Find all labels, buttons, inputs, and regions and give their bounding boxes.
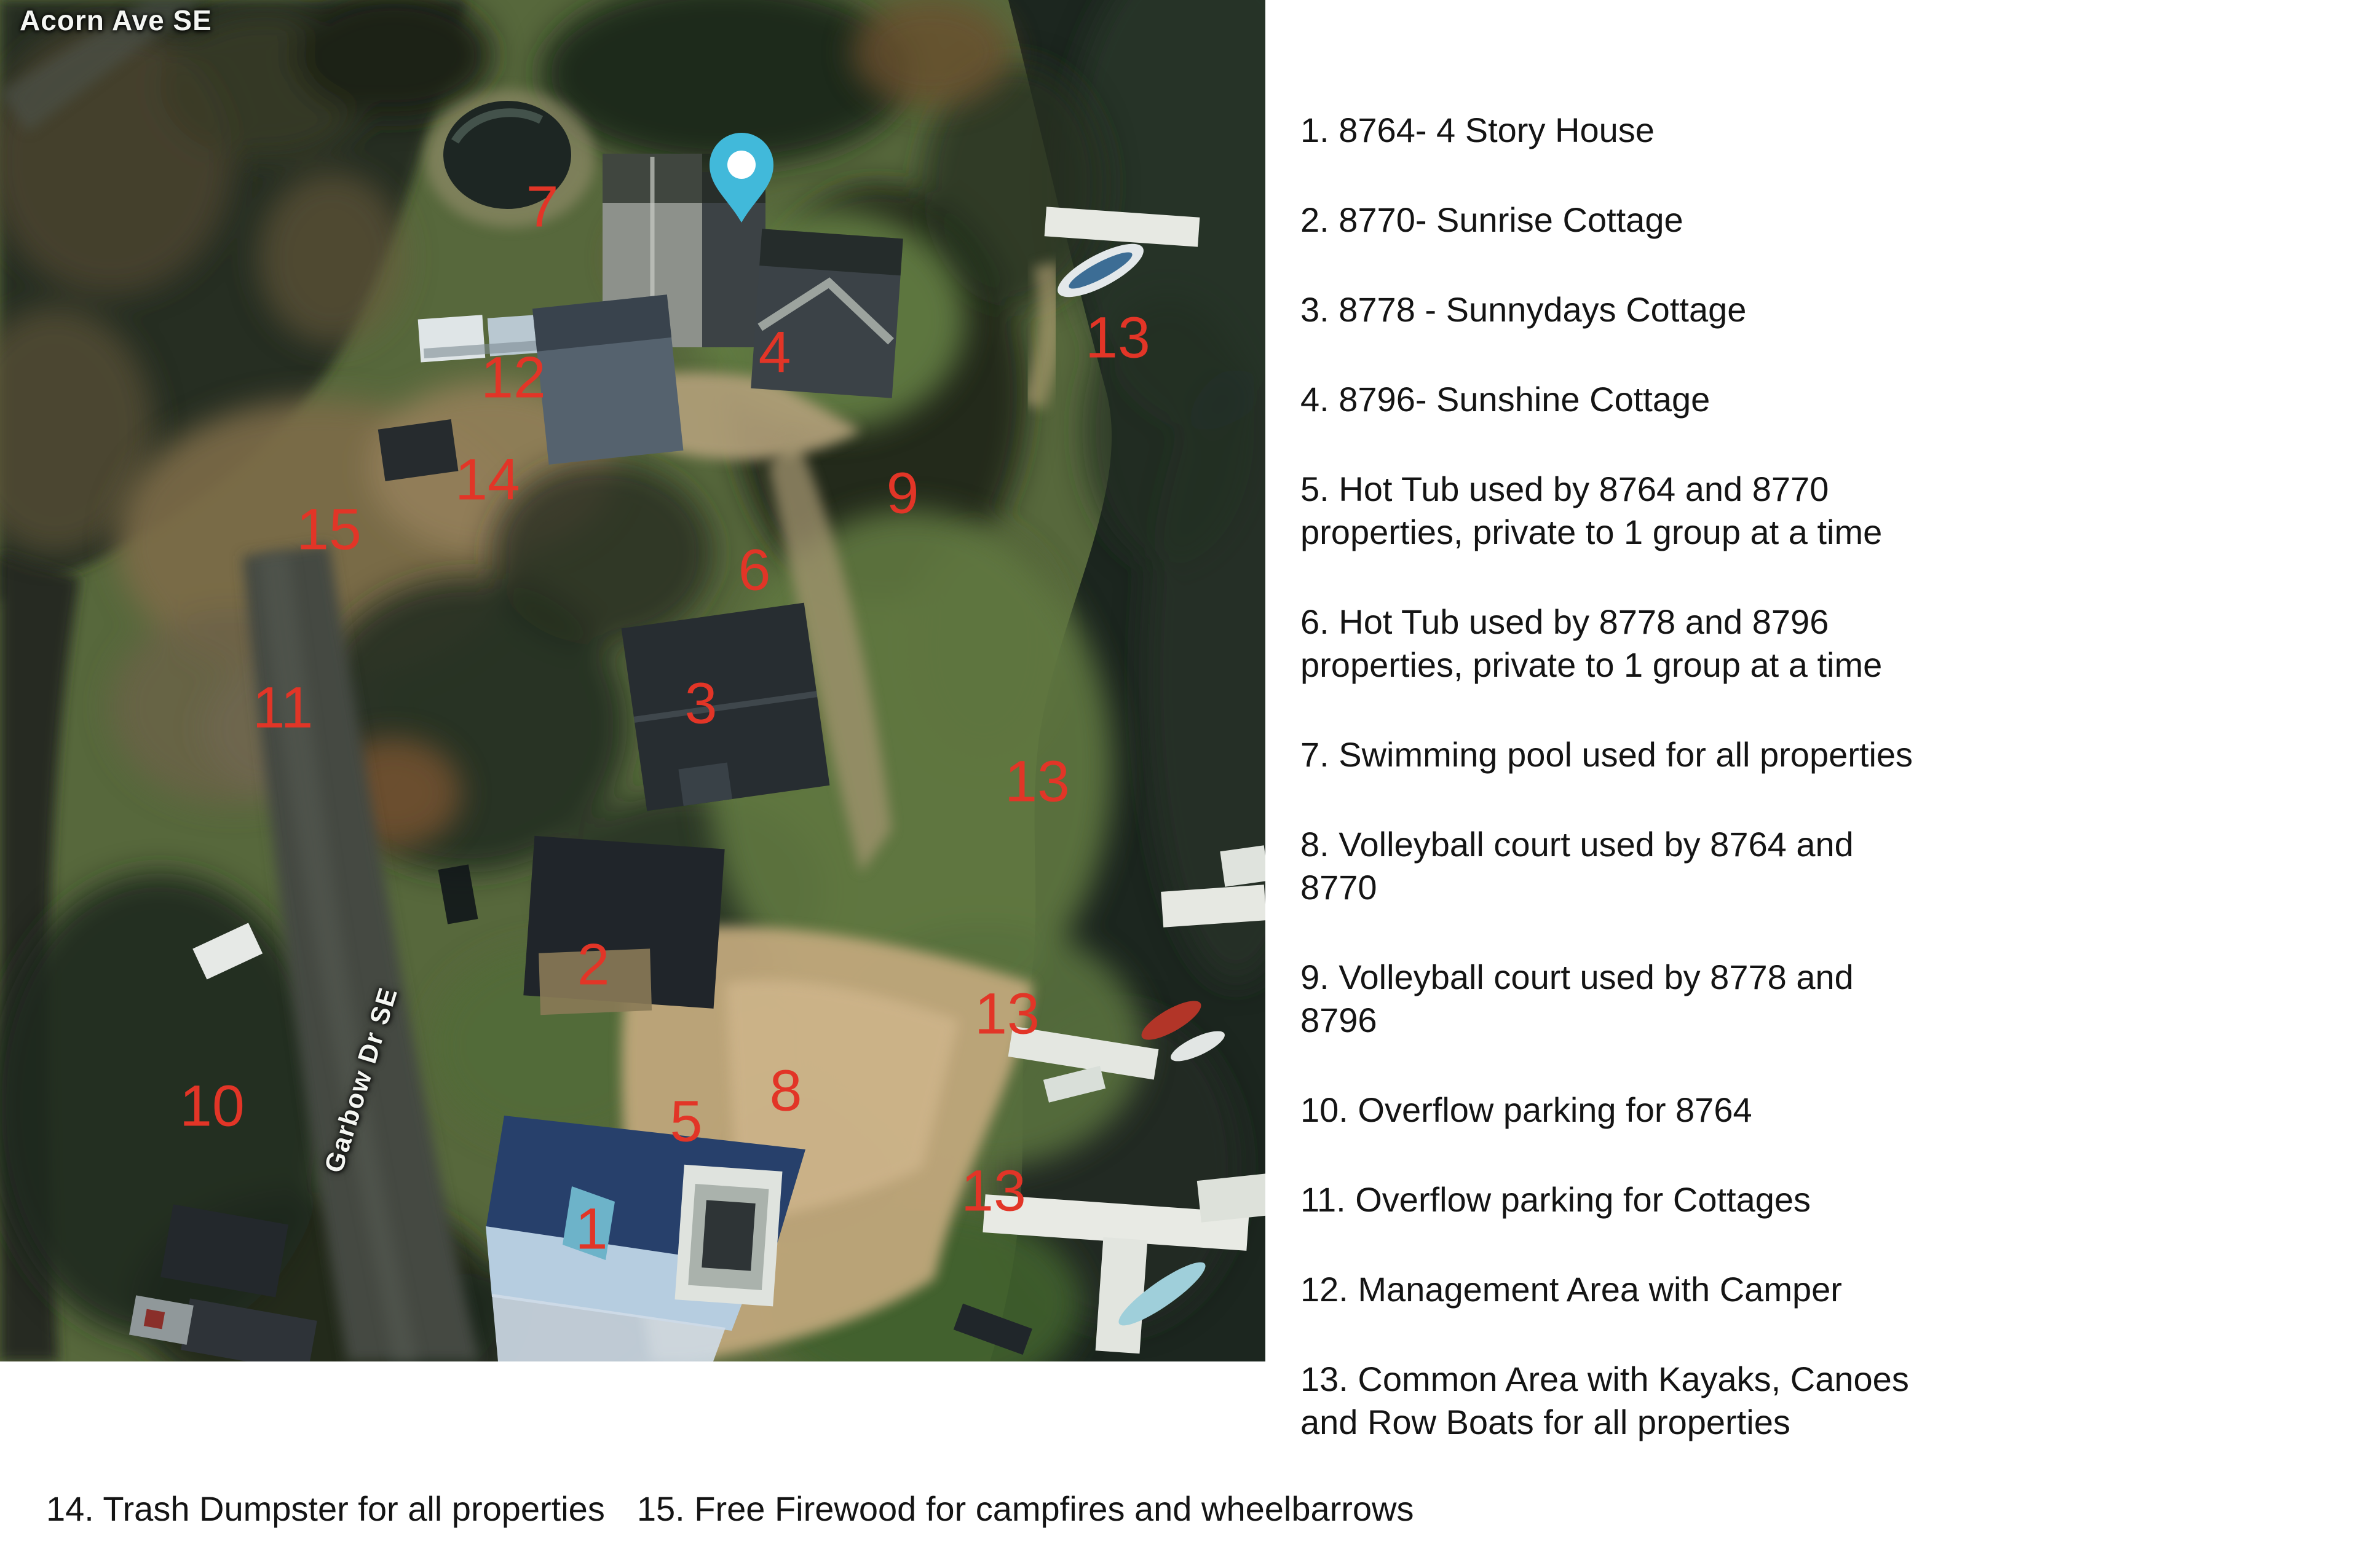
legend-item-line: 2. 8770- Sunrise Cottage: [1300, 199, 2069, 242]
map-marker: 13: [975, 985, 1040, 1044]
legend-item-line: properties, private to 1 group at a time: [1300, 511, 2069, 554]
legend-item-line: 5. Hot Tub used by 8764 and 8770: [1300, 468, 2069, 511]
legend-item-line: 6. Hot Tub used by 8778 and 8796: [1300, 601, 2069, 644]
legend-item-line: 12. Management Area with Camper: [1300, 1268, 2069, 1311]
property-map-page: Acorn Ave SE Garbow Dr SE 74131214915611…: [0, 0, 2361, 1568]
map-marker: 13: [1005, 753, 1070, 811]
legend-item: 10. Overflow parking for 8764: [1300, 1089, 2069, 1132]
footer-legend: 14. Trash Dumpster for all properties15.…: [46, 1487, 1414, 1531]
legend-item-line: 9. Volleyball court used by 8778 and: [1300, 956, 2069, 999]
map-markers: 741312149156113132138105131: [0, 0, 1265, 1361]
legend-item-line: 10. Overflow parking for 8764: [1300, 1089, 2069, 1132]
legend-item: 6. Hot Tub used by 8778 and 8796properti…: [1300, 601, 2069, 687]
legend-item-line: 11. Overflow parking for Cottages: [1300, 1178, 2069, 1221]
legend-item: 1. 8764- 4 Story House: [1300, 109, 2069, 152]
legend-item-line: 13. Common Area with Kayaks, Canoes: [1300, 1358, 2069, 1401]
map-marker: 14: [455, 451, 520, 510]
legend-item-line: properties, private to 1 group at a time: [1300, 644, 2069, 687]
map-marker: 9: [887, 465, 919, 523]
map: Acorn Ave SE Garbow Dr SE 74131214915611…: [0, 0, 1265, 1361]
map-marker: 13: [1085, 309, 1150, 368]
legend: 1. 8764- 4 Story House2. 8770- Sunrise C…: [1300, 109, 2069, 1491]
map-marker: 4: [759, 324, 791, 382]
map-marker: 7: [526, 178, 559, 237]
legend-item-line: 3. 8778 - Sunnydays Cottage: [1300, 288, 2069, 331]
legend-item: 12. Management Area with Camper: [1300, 1268, 2069, 1311]
legend-item-line: 8. Volleyball court used by 8764 and: [1300, 823, 2069, 866]
map-marker: 11: [253, 679, 314, 738]
legend-item: 2. 8770- Sunrise Cottage: [1300, 199, 2069, 242]
map-marker: 5: [670, 1093, 703, 1151]
map-marker: 2: [577, 936, 610, 995]
map-marker: 3: [685, 675, 718, 733]
legend-item: 3. 8778 - Sunnydays Cottage: [1300, 288, 2069, 331]
map-marker: 1: [575, 1200, 608, 1259]
map-marker: 10: [180, 1078, 245, 1136]
legend-item: 8. Volleyball court used by 8764 and8770: [1300, 823, 2069, 909]
map-marker: 6: [738, 542, 771, 600]
legend-item-line: and Row Boats for all properties: [1300, 1401, 2069, 1444]
legend-item: 9. Volleyball court used by 8778 and8796: [1300, 956, 2069, 1042]
map-marker: 15: [296, 501, 362, 559]
legend-item: 13. Common Area with Kayaks, Canoesand R…: [1300, 1358, 2069, 1444]
legend-item: 5. Hot Tub used by 8764 and 8770properti…: [1300, 468, 2069, 554]
legend-item-line: 8770: [1300, 866, 2069, 909]
legend-item: 4. 8796- Sunshine Cottage: [1300, 378, 2069, 421]
footer-item: 14. Trash Dumpster for all properties: [46, 1487, 605, 1531]
legend-item-line: 1. 8764- 4 Story House: [1300, 109, 2069, 152]
map-marker: 8: [770, 1062, 802, 1121]
map-marker: 13: [961, 1162, 1026, 1221]
legend-item: 7. Swimming pool used for all properties: [1300, 733, 2069, 776]
legend-item-line: 7. Swimming pool used for all properties: [1300, 733, 2069, 776]
map-marker: 12: [481, 349, 546, 408]
legend-item-line: 8796: [1300, 999, 2069, 1042]
legend-item-line: 4. 8796- Sunshine Cottage: [1300, 378, 2069, 421]
legend-item: 11. Overflow parking for Cottages: [1300, 1178, 2069, 1221]
footer-item: 15. Free Firewood for campfires and whee…: [637, 1487, 1414, 1531]
